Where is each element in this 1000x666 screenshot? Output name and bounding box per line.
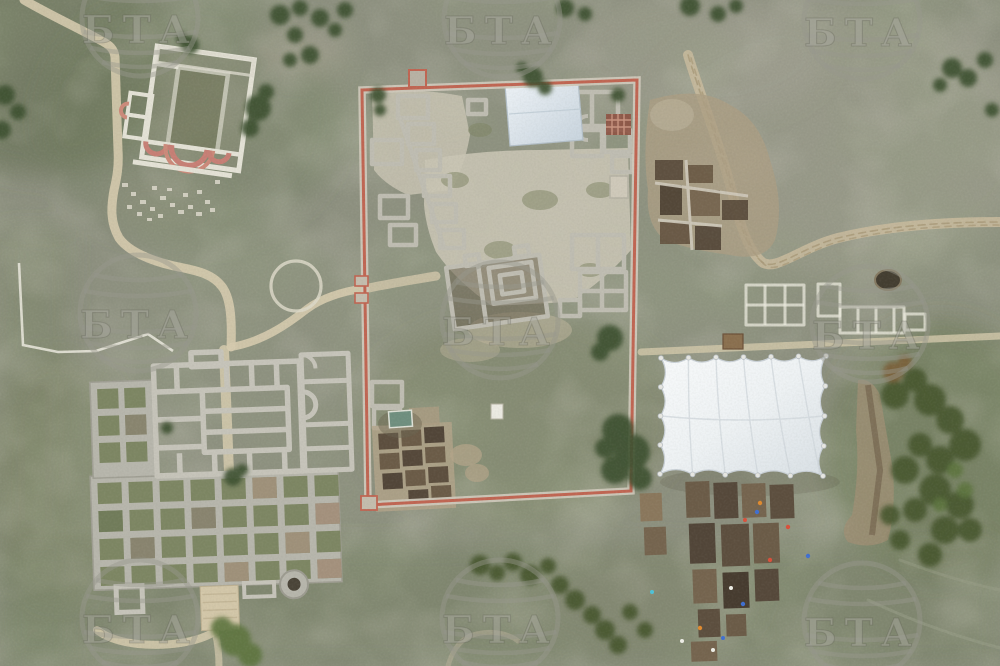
svg-text:БТА: БТА xyxy=(812,313,928,358)
svg-text:БТА: БТА xyxy=(442,309,558,354)
svg-text:БТА: БТА xyxy=(804,610,920,655)
svg-text:БТА: БТА xyxy=(80,302,196,347)
svg-text:БТА: БТА xyxy=(442,607,558,652)
svg-text:БТА: БТА xyxy=(82,607,198,652)
archaeological-site-aerial-photo: БТА БТА БТА БТА БТА xyxy=(0,0,1000,666)
svg-text:БТА: БТА xyxy=(444,8,560,53)
svg-text:БТА: БТА xyxy=(82,7,198,52)
svg-text:БТА: БТА xyxy=(804,10,920,55)
aerial-photo-stage: БТА БТА БТА БТА БТА xyxy=(0,0,1000,666)
